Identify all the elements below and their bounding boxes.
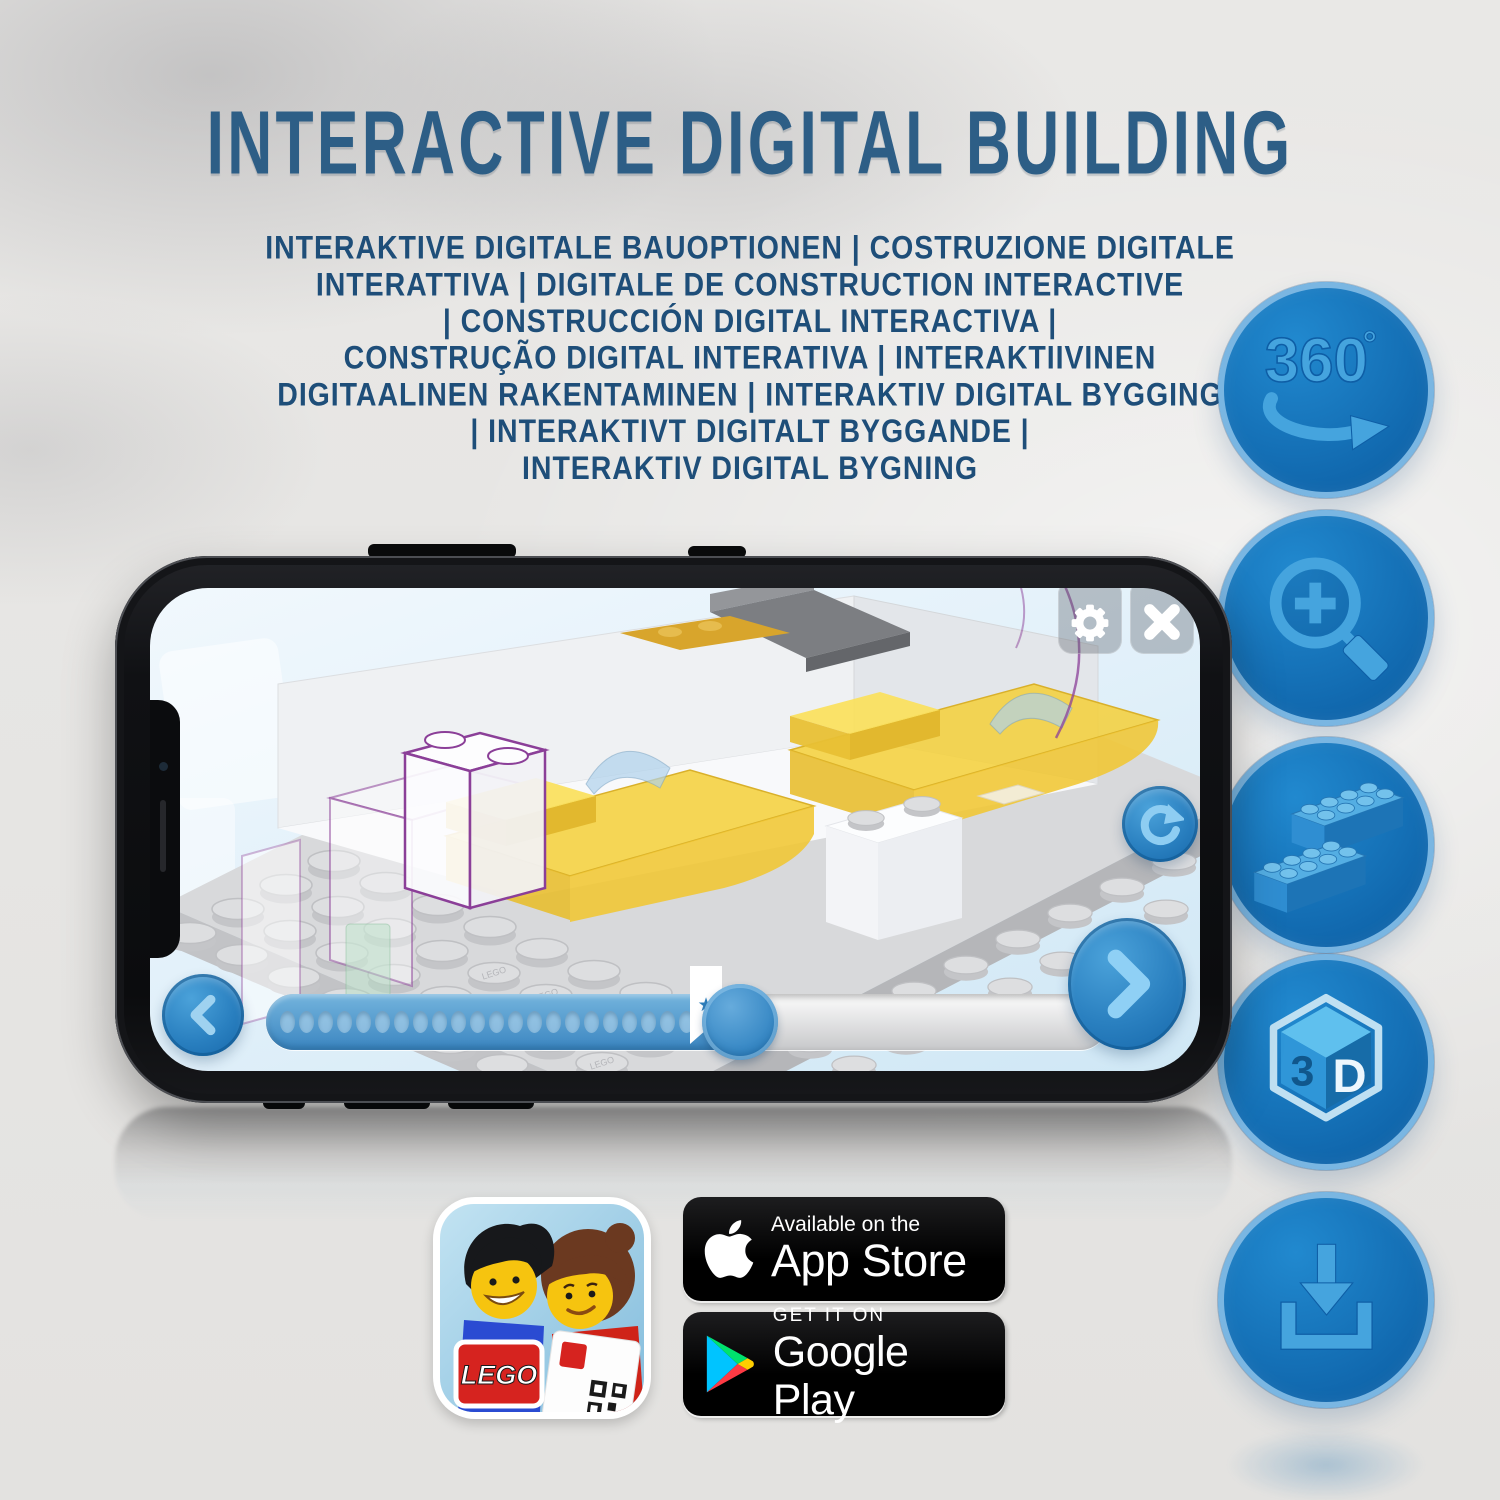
- app-store-text: Available on the App Store: [771, 1213, 967, 1285]
- qr-card: [542, 1330, 641, 1412]
- close-button[interactable]: [1130, 588, 1194, 654]
- svg-text:360: 360: [1265, 326, 1368, 395]
- svg-text:D: D: [1333, 1049, 1367, 1102]
- lego-app-art: LEGO: [440, 1204, 644, 1412]
- feature-download: [1218, 1192, 1434, 1408]
- chevron-left-icon: [180, 992, 226, 1038]
- reset-view-button[interactable]: [1122, 786, 1198, 862]
- apple-logo-icon: [703, 1216, 755, 1282]
- svg-text:°: °: [1362, 323, 1377, 364]
- gear-icon: [1069, 602, 1111, 644]
- feature-zoom: [1218, 510, 1434, 726]
- badge-line2: App Store: [771, 1237, 967, 1285]
- feature-brick: [1218, 737, 1434, 953]
- smartphone: LEGO LEGO LEGO LEGO LEGO: [115, 556, 1232, 1103]
- lego-brick-icon: [1248, 767, 1404, 923]
- earpiece-speaker: [160, 800, 166, 872]
- previous-step-button[interactable]: [162, 974, 244, 1056]
- progress-fill: [266, 994, 752, 1050]
- download-icon: [1251, 1225, 1401, 1375]
- front-camera: [159, 762, 168, 771]
- highlighted-ghost-brick: [405, 732, 545, 908]
- app-store-badge[interactable]: Available on the App Store: [683, 1197, 1005, 1301]
- google-play-badge[interactable]: GET IT ON Google Play: [683, 1312, 1005, 1416]
- build-progress-bar[interactable]: ★: [266, 994, 1108, 1050]
- lego-app-icon[interactable]: LEGO: [433, 1197, 651, 1419]
- google-play-text: GET IT ON Google Play: [773, 1304, 985, 1424]
- svg-text:LEGO: LEGO: [461, 1360, 538, 1390]
- phone-reflection: [115, 1107, 1232, 1222]
- google-play-icon: [703, 1332, 757, 1396]
- zoom-in-icon: [1251, 543, 1401, 693]
- feature-reflection: [1226, 1428, 1426, 1500]
- cube-3d-icon: 3 D: [1251, 987, 1401, 1137]
- settings-button[interactable]: [1058, 588, 1122, 654]
- badge-line2: Google Play: [773, 1328, 985, 1424]
- feature-3d-view: 3 D: [1218, 954, 1434, 1170]
- page: INTERACTIVE DIGITAL BUILDING INTERAKTIVE…: [0, 0, 1500, 1500]
- progress-thumb[interactable]: [702, 984, 778, 1060]
- subtitle-line: INTERAKTIVE DIGITALE BAUOPTIONEN | COSTR…: [38, 230, 1463, 267]
- close-icon: [1140, 600, 1184, 644]
- phone-notch: [150, 700, 180, 958]
- page-title: INTERACTIVE DIGITAL BUILDING: [135, 92, 1365, 195]
- lego-logo: LEGO: [456, 1342, 542, 1406]
- svg-text:3: 3: [1291, 1048, 1315, 1096]
- badge-line1: Available on the: [771, 1213, 967, 1237]
- app-screen: LEGO LEGO LEGO LEGO LEGO: [150, 588, 1200, 1071]
- next-step-button[interactable]: [1068, 918, 1186, 1050]
- feature-360-rotation: 360 °: [1218, 282, 1434, 498]
- rotate-arrow-icon: [1136, 800, 1184, 848]
- rotate-360-icon: 360 °: [1246, 315, 1406, 465]
- subtitle-line: INTERATTIVA | DIGITALE DE CONSTRUCTION I…: [38, 267, 1463, 304]
- progress-steps: [280, 1011, 732, 1033]
- chevron-right-icon: [1092, 944, 1162, 1024]
- badge-line1: GET IT ON: [773, 1304, 985, 1328]
